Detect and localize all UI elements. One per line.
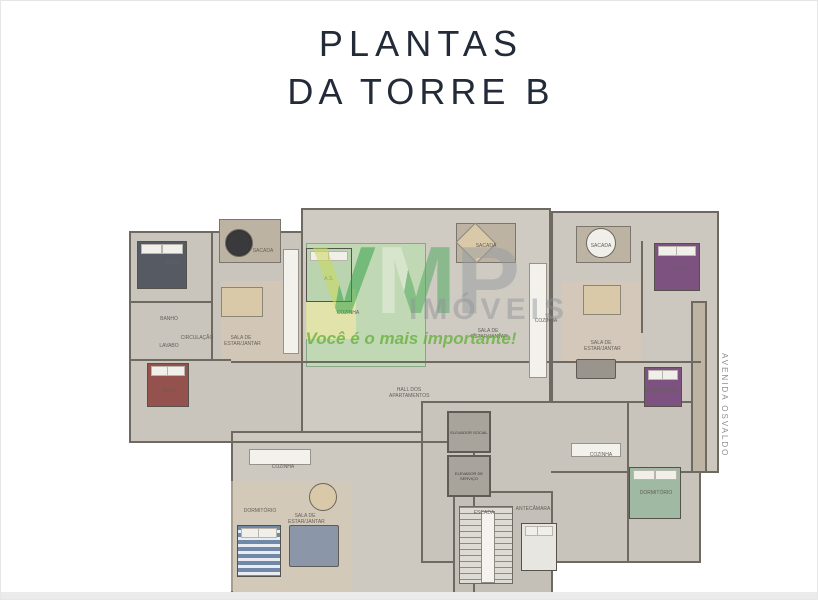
bed-icon-dorm-bottom-center [521, 523, 557, 571]
round-table-icon-bottom-left [309, 483, 337, 511]
wall [129, 359, 231, 361]
room-label: BANHO [149, 316, 189, 322]
room-label: SALA DE ESTAR/JANTAR [288, 513, 322, 525]
pillow-icon [658, 246, 678, 256]
room-label: A.S. [309, 276, 349, 282]
pillow-icon [662, 370, 678, 380]
pillow-icon [310, 251, 330, 261]
room-label: SALA DE ESTAR/JANTAR [224, 335, 258, 347]
sofa-icon-right [576, 359, 616, 379]
pillow-icon [676, 246, 696, 256]
sofa-icon-bottom-left [289, 525, 339, 567]
room-label: COZINHA [328, 310, 368, 316]
pillow-icon [141, 244, 162, 254]
wall [129, 301, 213, 303]
page-title-line2: DA TORRE B [241, 71, 601, 113]
kitchen-counter-icon-left [283, 249, 299, 354]
room-label: SACADA [243, 248, 283, 254]
bed-icon-dorm-bottom-left [237, 525, 281, 577]
bed-icon-highlighted-unit [306, 248, 352, 302]
page-title: PLANTAS DA TORRE B [241, 23, 601, 113]
bed-icon-dorm-mid-right [644, 367, 682, 407]
room-label: ESCADA [464, 510, 504, 516]
pillow-icon [241, 528, 260, 538]
elevator-service-box: ELEVADOR DE SERVIÇO [447, 455, 491, 497]
wall [641, 241, 643, 333]
room-label: COZINHA [581, 452, 621, 458]
room-label: DORMITÓRIO [641, 388, 681, 394]
pillow-icon [655, 470, 677, 480]
bed-icon-suite-mid-left [147, 363, 189, 407]
room-label: HALL DOS APARTAMENTOS [389, 387, 429, 399]
stairs-icon [459, 506, 513, 584]
pillow-icon [167, 366, 185, 376]
dining-table-icon-right [583, 285, 621, 315]
wall [231, 361, 701, 363]
room-label: DORMITÓRIO [240, 508, 280, 514]
pillow-icon [328, 251, 348, 261]
room-label: LAVABO [149, 343, 189, 349]
page-title-line1: PLANTAS [241, 23, 601, 65]
room-label: SUITE [149, 388, 189, 394]
page-bottom-edge [1, 592, 817, 599]
kitchen-counter-icon-bottom-left [249, 449, 311, 465]
room-label: COZINHA [526, 318, 566, 324]
room-label: COZINHA [263, 464, 303, 470]
room-label: SALA DE ESTAR/JANTAR [471, 328, 505, 340]
dining-table-icon-left [221, 287, 263, 317]
room-label: ANTECÂMARA [513, 506, 553, 512]
pillow-icon [258, 528, 277, 538]
room-label: ELEVADOR SOCIAL [450, 430, 487, 435]
floor-slab-right-balcony [691, 301, 707, 473]
pillow-icon [162, 244, 183, 254]
wall [231, 441, 453, 443]
room-label: SUITE [659, 266, 699, 272]
room-label: CIRCULAÇÃO [177, 335, 217, 341]
room-label: DORMITÓRIO [636, 490, 676, 496]
room-label: ELEVADOR DE SERVIÇO [449, 471, 489, 481]
room-label: SACADA [466, 243, 506, 249]
pillow-icon [633, 470, 655, 480]
pillow-icon [537, 526, 553, 536]
elevator-social-box: ELEVADOR SOCIAL [447, 411, 491, 453]
floor-plan: ELEVADOR SOCIAL ELEVADOR DE SERVIÇO SUIT… [119, 203, 711, 597]
room-label: SACADA [581, 243, 621, 249]
room-label: SUITE [153, 260, 193, 266]
room-label: SALA DE ESTAR/JANTAR [584, 340, 618, 352]
stair-stringer [481, 511, 495, 583]
wall [211, 231, 213, 361]
